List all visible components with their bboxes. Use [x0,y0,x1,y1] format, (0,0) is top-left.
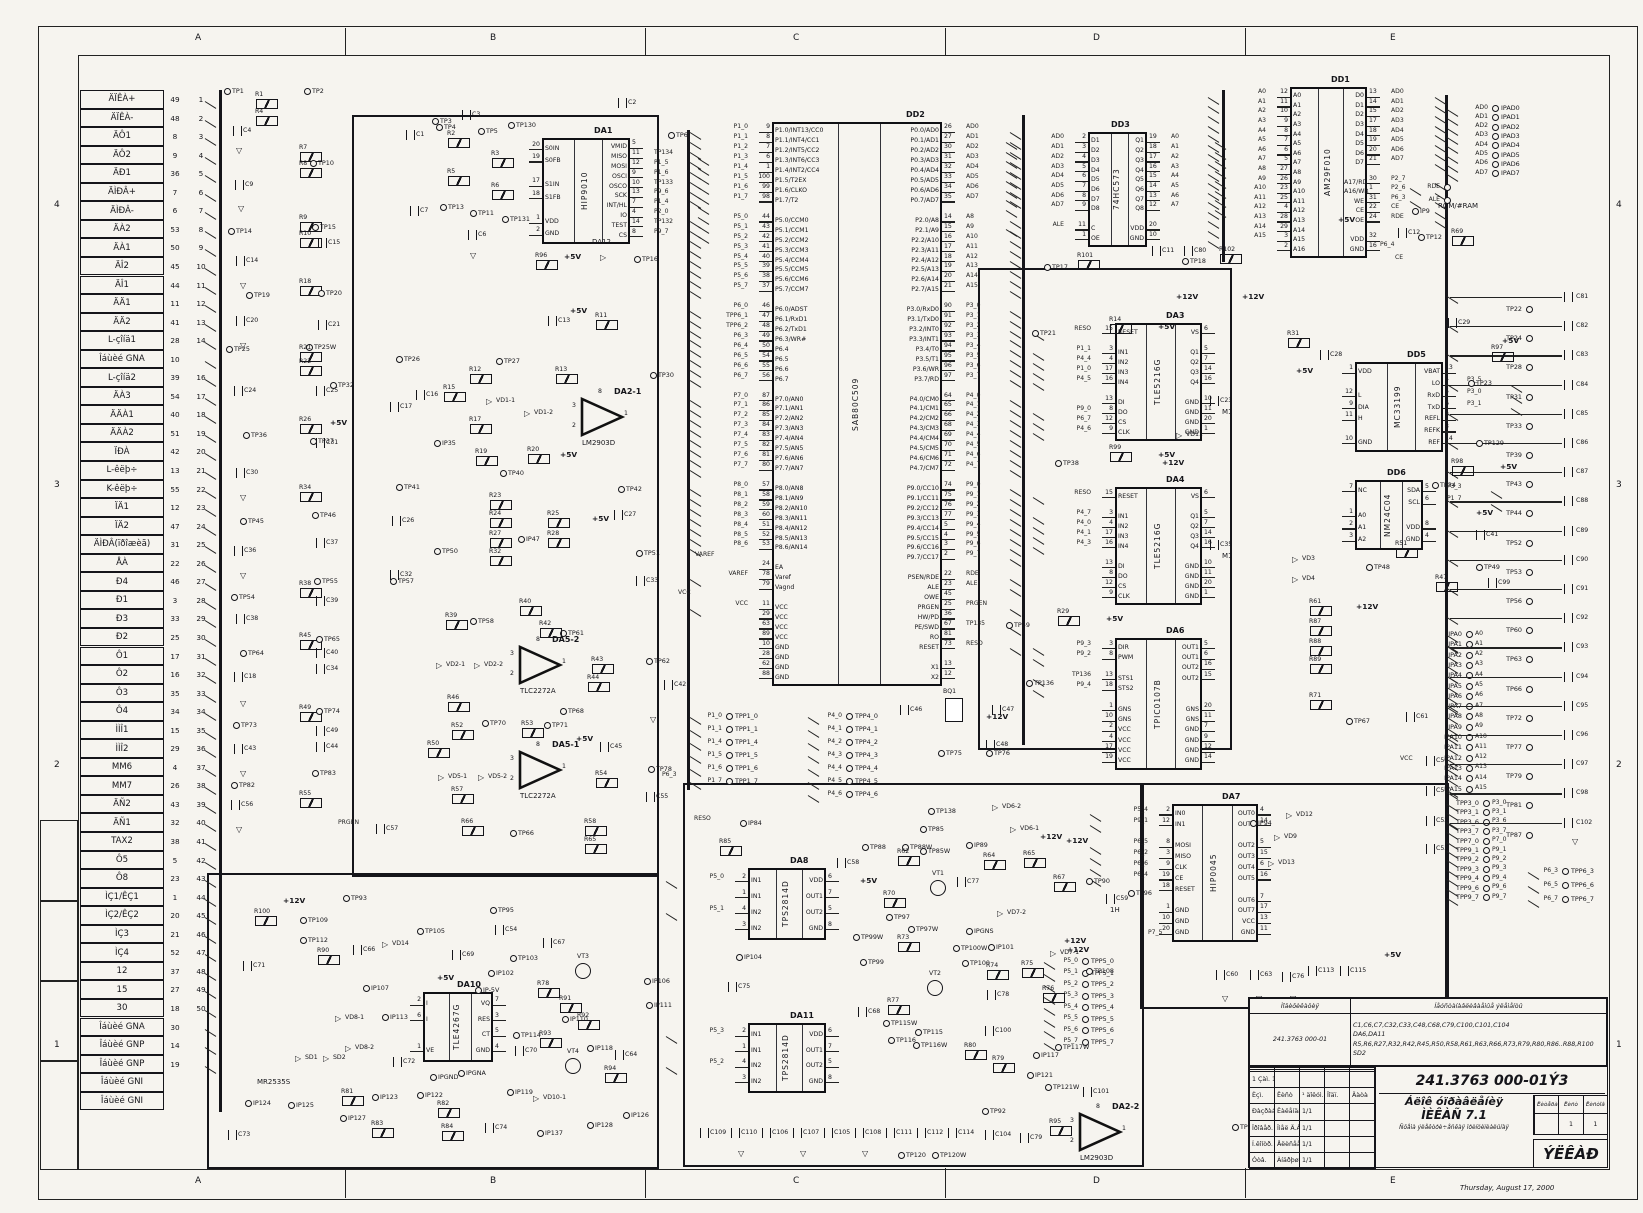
pin-stub [1342,516,1355,517]
test-pad-label: TPP4_2 [855,738,878,746]
capacitor-label: C60 [1226,971,1238,978]
pin-label: PRGEN [881,605,939,611]
net-label: P7_6 [704,452,748,458]
test-point-label: TP65 [324,635,340,643]
pin-number: 22 [944,571,964,577]
capacitor-label: C96 [1576,731,1588,738]
net-label: P5_3 [680,1028,724,1034]
pin-label: P4.5/CM5 [881,446,939,452]
text-label: MR2535S [257,1078,290,1086]
test-point-label: TP103 [518,954,538,962]
pin-number: 6 [828,874,848,880]
titleblock-cell [1325,1120,1350,1136]
resistor-label: R22 [299,358,311,365]
pin-label: OUT5 [1233,876,1255,882]
pin-number: 21 [1369,156,1389,162]
net-label: AD1 [966,134,1010,140]
pin-label: EA [775,565,833,571]
net-label: P1_2 [704,144,748,150]
test-point [417,1092,424,1099]
pin-number: 85 [750,412,770,418]
pin-label: L [1358,393,1382,399]
pin-stub [1258,879,1271,880]
row-number: 1 [54,1040,60,1050]
pin-number: 13 [1149,193,1169,199]
pin-label: GNS [1176,707,1199,713]
pin-label: P0.2/AD2 [881,148,939,154]
pin-stub [1258,847,1271,848]
test-point [500,470,507,477]
net-label: P9_7 [1492,894,1506,900]
pin-number: 3 [1445,424,1465,430]
ic-ref-label: DA11 [790,1011,814,1020]
resistor [318,955,340,965]
ground-symbol: ▽ [240,572,246,580]
diode: ▷ [474,662,480,670]
resistor-label: R69 [1451,228,1463,235]
connector-pin-number: 5 [163,856,187,865]
titleblock-cell [1350,1136,1375,1152]
power-rail-label: +12V [1066,836,1088,845]
titleblock-cell [1325,1152,1350,1168]
net-label: P6_3 [704,333,748,339]
connector-pin-row: TAX2 [80,832,164,851]
test-point-label: TP2 [312,87,324,95]
pin-label: H [1358,416,1382,422]
pin-stub [1102,413,1115,414]
test-point [898,1152,905,1159]
pin-number: 4 [726,1059,746,1065]
title-name1: Áëîê óïðàâëåíèÿ [1379,1095,1529,1108]
resistor-label: R12 [469,366,481,373]
capacitor [393,1057,402,1067]
capacitor-label: C95 [1576,702,1588,709]
pin-number: 8 [1093,406,1113,412]
capacitor-label: C69 [462,951,474,958]
pin-label: A8 [1293,170,1313,176]
resistor [256,116,278,126]
pin-number: 18 [944,254,964,260]
test-point [636,550,643,557]
diode-label: SD2 [333,1054,346,1061]
zone-letter-top: A [195,33,201,43]
power-rail-label: +5V [560,450,577,459]
connector-pin-number: 20 [163,911,187,920]
test-point-label: TP15 [320,223,336,231]
test-pad-label: TPP4_5 [855,777,878,785]
net-label: AD2 [1391,108,1435,114]
test-point-label: TP64 [248,649,264,657]
capacitor [410,206,419,216]
resistor-label: R100 [254,908,270,915]
test-pad [1526,686,1533,693]
resistor [987,970,1009,980]
pin-label: P7.2/AN2 [775,416,833,422]
diode-label: VD10-1 [543,1094,566,1101]
test-pad [1526,394,1533,401]
bus [1022,115,1025,745]
row-number: 4 [1616,200,1622,210]
pin-number: 9 [1268,118,1288,124]
net-label: P5_2 [704,234,748,240]
test-point-label: IPGND [438,1073,458,1081]
test-point-label: TP11 [478,209,494,217]
titleblock-cell [1350,1152,1375,1168]
capacitor [1564,350,1573,360]
capacitor-label: C40 [326,649,338,656]
net-label: P6_4 [1104,872,1148,878]
pin-label: P1.1/INT4/CC1 [775,138,833,144]
capacitor [1152,246,1161,256]
pin-label: IN3 [1118,534,1141,540]
net-label: CE [1395,255,1403,261]
net-label: A0 [1222,89,1266,95]
resistor-label: R10 [299,230,311,237]
capacitor-label: C91 [1576,585,1588,592]
pin-stub [1102,547,1115,548]
net-label: A15 [1475,785,1487,791]
pin-number: 8 [1268,128,1288,134]
pin-number: 65 [944,402,964,408]
titleblock-cell [1350,1104,1375,1120]
connector-pin-row: ÄÌÐÂ+ [80,183,164,202]
pin-stub [1202,527,1215,528]
net-label: P1_5 [704,174,748,180]
test-point-label: TP74 [324,707,340,715]
pin-stub [1202,383,1215,384]
net-label: P3_1 [1467,401,1511,407]
pin-stub [1102,527,1115,528]
net-label: A10 [1222,185,1266,191]
capacitor-label: C20 [246,317,258,324]
net-label: P5_0 [704,214,748,220]
capacitor [236,468,245,478]
pin-label: RESET [1175,887,1197,893]
pin-label: P0.3/AD3 [881,158,939,164]
ground-symbol: ▽ [238,205,244,213]
pin-label: A10 [1293,189,1313,195]
net-label: P6_7 [704,373,748,379]
pin-label: A11 [1293,199,1313,205]
connector-pin-number: 14 [163,1041,187,1050]
resistor-label: R4 [255,108,263,115]
pin-stub [1202,587,1215,588]
pin-number: 34 [944,184,964,190]
resistor [448,702,470,712]
pin-number: 1 [1093,703,1113,709]
pin-label: IN1 [1175,822,1197,828]
pin-label: RxD [1416,393,1440,399]
test-pad-label: TP22 [1482,305,1522,313]
pin-number: 17 [944,244,964,250]
capacitor-label: C34 [326,665,338,672]
test-pad-label: TP28 [1482,363,1522,371]
test-point [436,124,443,131]
pin-number: 15 [1260,850,1280,856]
connector-pin-row: K-êëþ÷ [80,480,164,499]
pin-stub [1102,373,1115,374]
pin-label: GND [1175,919,1197,925]
connector-pin-number: 45 [163,262,187,271]
test-point-label: TP4 [444,123,456,131]
pin-number: 13 [1093,396,1113,402]
pin-number: 12 [1149,202,1169,208]
test-point [982,1108,989,1115]
crystal-label: BQ1 [943,688,956,695]
connector-pin-number: 54 [163,392,187,401]
net-label: AD6 [1020,193,1064,199]
resistor [300,492,322,502]
resistor [585,844,607,854]
pin-label: Q3 [1129,158,1144,164]
pin-number: 17 [520,178,540,184]
pin-number: 15 [944,224,964,230]
capacitor-label: C70 [525,1047,537,1054]
pin-label: P3.5/T1 [881,357,939,363]
pin-number: 15 [1149,173,1169,179]
capacitor-label: C61 [1416,713,1428,720]
pin-label: P3.0/RxD0 [881,307,939,313]
wire [1450,326,1562,327]
connector-pin-row: ÄÑ2 [80,795,164,814]
pin-stub [1443,408,1456,409]
pin-label: IN1 [751,894,771,900]
pin-number: 71 [944,452,964,458]
test-point-label: TP120 [906,1151,926,1159]
test-point-label: TP23 [1476,379,1492,387]
pin-number: 10 [1333,436,1353,442]
net-label: P9_0 [1047,406,1091,412]
pin-number: 16 [1260,872,1280,878]
titleblock-cell [1350,1072,1375,1088]
pin-label: RESET [1118,494,1141,500]
test-point-label: TP50 [442,547,458,555]
pin-label: P2.1/A9 [881,228,939,234]
pin-number: 16 [1204,661,1224,667]
net-label: P1_6 [704,184,748,190]
test-point [1346,718,1353,725]
pin-number: 78 [750,571,770,577]
pin-label: NC [1358,488,1375,494]
pin-stub [1258,901,1271,902]
titleblock-cell: Í.êîíòð. [1250,1136,1275,1152]
titleblock-cell: Êàëåíäàðåâ À.Ì. [1275,1104,1300,1120]
pin-label: A16 [1293,247,1313,253]
test-point-label: IP94 [1258,819,1272,827]
net-label: AD0 [1391,89,1435,95]
power-rail-label: +5V [437,973,454,982]
pin-stub [1202,497,1215,498]
zone-tick [645,28,646,55]
pin-number: 3 [1093,641,1113,647]
wire [1450,297,1562,298]
net-label: AD3 [1020,164,1064,170]
pin-number: 16 [1149,164,1169,170]
net-label: P5_1 [680,906,724,912]
connector-pin-row: 12 [80,962,164,981]
pin-stub [410,1051,423,1052]
ground-symbol: ▽ [470,252,476,260]
test-pad-label: IPA6 [1420,692,1462,700]
pin-label: A13 [1293,218,1313,224]
test-pad-label: TPP9_6 [1437,884,1479,892]
resistor-label: R29 [1057,608,1069,615]
pin-number: 7 [1333,484,1353,490]
notes-line: DA6,DA11 [1353,1030,1604,1039]
connector-pin-number: 52 [163,948,187,957]
net-label: P4_2 [806,739,842,745]
pin-stub [1443,396,1456,397]
net-label: RESO [966,641,1010,647]
ground-symbol: ▽ [240,770,246,778]
pin-number: 12 [1333,389,1353,395]
connector-pin-number: 3 [163,596,187,605]
resistor [548,538,570,548]
pin-label: Varef [775,575,833,581]
test-point-label: TP14 [236,227,252,235]
net-label: P3_1 [966,313,1010,319]
pin-number: 68 [944,422,964,428]
test-point-label: TP46 [320,511,336,519]
zone-letter-bottom: A [195,1176,201,1186]
pin-number: 6 [1066,173,1086,179]
titleblock-cell: Ïîäï. [1325,1088,1350,1104]
pin-number: 3 [1066,144,1086,150]
pin-number: 8 [1093,651,1113,657]
pin-stub [1342,396,1355,397]
net-label: AD4 [1452,142,1488,148]
net-label: P6_3 [662,772,676,778]
pin-label: A9 [1293,180,1313,186]
test-point-label: IP118 [595,1044,613,1052]
resistor [536,260,558,270]
test-point [913,1042,920,1049]
connector-pin-row: ÄÔ2 [80,146,164,165]
pin-label: VCC [1233,919,1255,925]
test-pad [726,778,733,785]
pin-label: P3.3/INT1 [881,337,939,343]
resistor-label: R53 [521,720,533,727]
pin-label: REFK [1416,428,1440,434]
net-label: A15 [966,283,1010,289]
connector-pin-row: L-êëþ÷ [80,461,164,480]
net-label: P4_7 [966,462,1010,468]
resistor-label: R27 [489,530,501,537]
pin-label: DIA [1358,405,1382,411]
ground-symbol: ▽ [240,282,246,290]
pin-number: 14 [1149,183,1169,189]
test-point [1418,234,1425,241]
test-point [646,1002,653,1009]
test-point [228,228,235,235]
pin-label: P8.6/AN14 [775,545,833,551]
test-point [736,954,743,961]
notes-body: C1,C6,C7,C32,C33,C48,C68,C79,C100,C101,C… [1351,1014,1607,1066]
pin-number: 4 [1268,204,1288,210]
pin-label: GND [1175,930,1197,936]
pin-label: OUT2 [1176,665,1199,671]
pin-label: IN1 [1118,350,1141,356]
test-point [430,1074,437,1081]
capacitor-label: C38 [246,615,258,622]
pin-label: P0.7/AD7 [881,198,939,204]
sheet-value: 1 [1559,1114,1583,1135]
pin-label: GND [1358,440,1382,446]
transistor-label: VT4 [567,1048,579,1055]
pin-stub [1202,363,1215,364]
zone-tick [945,1168,946,1198]
diode-label: VD1-2 [534,409,553,416]
capacitor [985,1026,994,1036]
pin-stub [1342,373,1355,374]
resistor [1022,968,1044,978]
connector-pin-row: Ð1 [80,591,164,610]
pin-label: IN2 [1118,360,1141,366]
test-point [434,440,441,447]
pin-number: 3 [572,403,576,409]
capacitor-label: C94 [1576,673,1588,680]
net-label: P1_3 [704,154,748,160]
pin-number: 13 [1093,672,1113,678]
pin-number: 9 [1066,202,1086,208]
pin-label: D1 [1091,138,1106,144]
net-label: P5_7 [704,283,748,289]
pin-number: 7 [828,890,848,896]
resistor [1452,466,1474,476]
pin-number: 4 [1093,734,1113,740]
connector-pin-number: 25 [163,633,187,642]
connector-pin-number: 51 [163,429,187,438]
row-number: 3 [54,480,60,490]
resistor-label: R98 [1451,458,1463,465]
net-label: P4_3 [1047,540,1091,546]
ground-symbol: ▽ [236,147,242,155]
test-pad-label: TP43 [1482,480,1522,488]
pin-label: OSCI [603,174,627,180]
pin-number: 7 [1268,137,1288,143]
pin-number: 23 [1268,185,1288,191]
pin-number: 15 [1204,672,1224,678]
connector-pin-number: 19 [163,1060,187,1069]
power-rail-label: +5V [564,252,581,261]
test-point-label: TP90 [1094,877,1110,885]
net-label: A14 [1222,224,1266,230]
connector-pin-row: ÏÄ1 [80,498,164,517]
power-rail-label: +5V [1106,614,1123,623]
pin-label: P5.0/CCM0 [775,218,833,224]
pin-label: VDD [1129,226,1144,232]
pin-label: P1.3/INT6/CC3 [775,158,833,164]
pin-number: 48 [750,323,770,329]
pin-label: Q3 [1176,370,1199,376]
ic-ref-label: DA3 [1166,311,1184,320]
test-point-label: TP85W [928,847,950,855]
test-point [510,955,517,962]
pin-number: 81 [750,452,770,458]
capacitor [1320,350,1329,360]
pin-stub [735,1082,748,1083]
pin-stub [529,235,542,236]
pin-label: CLK [1118,594,1141,600]
pin-label: GND [803,926,823,932]
capacitor [376,824,385,834]
test-point [396,484,403,491]
pin-number: 6 [1268,147,1288,153]
net-label: A9 [1222,176,1266,182]
titleblock-cell [1325,1136,1350,1152]
text-label: DA12 [592,238,611,246]
pin-label: P5.2/CCM2 [775,238,833,244]
